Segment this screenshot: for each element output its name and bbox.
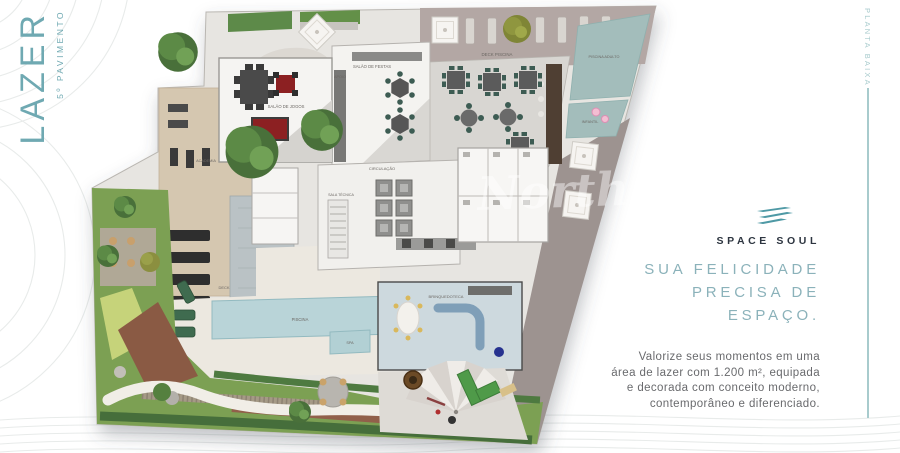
body-line-4: contemporâneo e diferenciado. bbox=[480, 397, 820, 413]
label-brinquedoteca: BRINQUEDOTECA bbox=[429, 294, 464, 299]
label-spa: SPA bbox=[346, 341, 354, 345]
body-copy: Valorize seus momentos em uma área de la… bbox=[480, 350, 820, 412]
label-deck: DECK bbox=[218, 285, 229, 290]
garden-patio-table bbox=[318, 377, 348, 407]
room-core bbox=[318, 160, 476, 270]
label-deck-piscina: DECK PISCINA bbox=[482, 52, 513, 57]
label-apoio: APOIO bbox=[334, 75, 346, 79]
headline-line-1: SUA FELICIDADE bbox=[490, 258, 820, 281]
label-circulacao: CIRCULAÇÃO bbox=[369, 166, 395, 171]
body-line-3: e decorada com conceito moderno, bbox=[480, 381, 820, 397]
page-title: LAZER bbox=[16, 10, 50, 145]
label-academia: ACADEMIA bbox=[196, 159, 216, 163]
body-line-1: Valorize seus momentos em uma bbox=[480, 350, 820, 366]
label-piscina-infantil: INFANTIL bbox=[582, 120, 599, 124]
label-salao-jogos: SALÃO DE JOGOS bbox=[268, 104, 305, 109]
room-changing bbox=[252, 168, 298, 244]
card-table bbox=[273, 72, 298, 96]
label-sala-tecnica: SALA TÉCNICA bbox=[328, 192, 354, 197]
label-salao-festas: SALÃO DE FESTAS bbox=[353, 64, 391, 69]
vertical-divider bbox=[867, 88, 869, 418]
brand-block: SPACE SOUL bbox=[580, 206, 820, 247]
headline: SUA FELICIDADE PRECISA DE ESPAÇO. bbox=[490, 258, 820, 327]
label-piscina-adulto: PISCINA ADULTO bbox=[589, 55, 620, 59]
brand-name: SPACE SOUL bbox=[580, 235, 820, 247]
label-piscina: PISCINA bbox=[292, 317, 309, 322]
body-line-2: área de lazer com 1.200 m², equipada bbox=[480, 366, 820, 382]
headline-line-3: ESPAÇO. bbox=[490, 304, 820, 327]
brochure-page: { "theme": { "accent": "#6fa9b2", "accen… bbox=[0, 0, 900, 453]
page-subtitle: 5º PAVIMENTO bbox=[55, 10, 65, 100]
brand-waves-icon bbox=[751, 206, 793, 231]
left-rail: LAZER 5º PAVIMENTO bbox=[16, 10, 65, 190]
headline-line-2: PRECISA DE bbox=[490, 281, 820, 304]
room-party bbox=[332, 42, 430, 165]
deck-tree bbox=[503, 15, 531, 43]
planta-baixa-label: PLANTA BAIXA bbox=[863, 8, 872, 87]
